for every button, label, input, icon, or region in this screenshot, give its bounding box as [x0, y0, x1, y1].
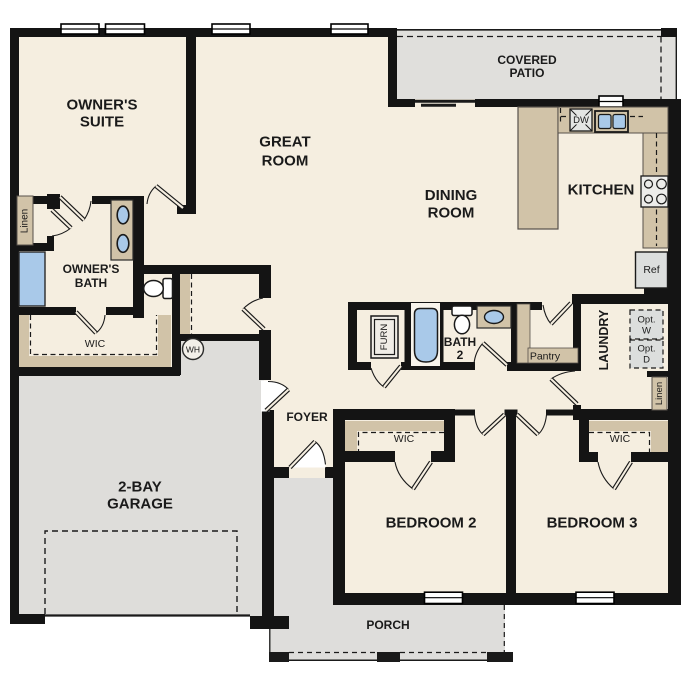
svg-text:BEDROOM 2: BEDROOM 2: [386, 515, 477, 532]
svg-text:FURN: FURN: [379, 324, 390, 351]
svg-text:WH: WH: [186, 345, 200, 355]
svg-text:DW: DW: [573, 115, 589, 126]
svg-text:OWNER'S: OWNER'S: [66, 97, 137, 114]
svg-text:PATIO: PATIO: [510, 66, 545, 80]
svg-text:WIC: WIC: [394, 433, 415, 445]
svg-text:KITCHEN: KITCHEN: [568, 182, 635, 199]
svg-text:COVERED: COVERED: [497, 53, 557, 67]
svg-text:ROOM: ROOM: [262, 153, 309, 170]
svg-text:2: 2: [457, 348, 464, 362]
svg-text:BATH: BATH: [444, 335, 476, 349]
svg-text:Pantry: Pantry: [530, 351, 561, 363]
svg-text:WIC: WIC: [610, 433, 631, 445]
svg-text:2-BAY: 2-BAY: [118, 479, 162, 496]
svg-text:PORCH: PORCH: [366, 618, 409, 632]
svg-text:Opt.: Opt.: [638, 315, 656, 326]
svg-text:SUITE: SUITE: [80, 114, 124, 131]
svg-text:ROOM: ROOM: [428, 205, 475, 222]
svg-text:WIC: WIC: [85, 338, 106, 350]
svg-text:OWNER'S: OWNER'S: [63, 262, 120, 276]
svg-text:BATH: BATH: [75, 276, 107, 290]
svg-text:W: W: [642, 326, 651, 337]
svg-text:D: D: [643, 355, 650, 366]
svg-text:FOYER: FOYER: [286, 410, 328, 424]
svg-text:BEDROOM 3: BEDROOM 3: [547, 515, 638, 532]
svg-text:GREAT: GREAT: [259, 134, 310, 151]
svg-text:Opt.: Opt.: [638, 344, 656, 355]
svg-text:LAUNDRY: LAUNDRY: [597, 309, 611, 370]
svg-text:DINING: DINING: [425, 187, 478, 204]
svg-text:Linen: Linen: [654, 382, 665, 405]
svg-text:Linen: Linen: [20, 209, 31, 233]
svg-text:Ref: Ref: [643, 264, 659, 276]
svg-text:GARAGE: GARAGE: [107, 496, 173, 513]
